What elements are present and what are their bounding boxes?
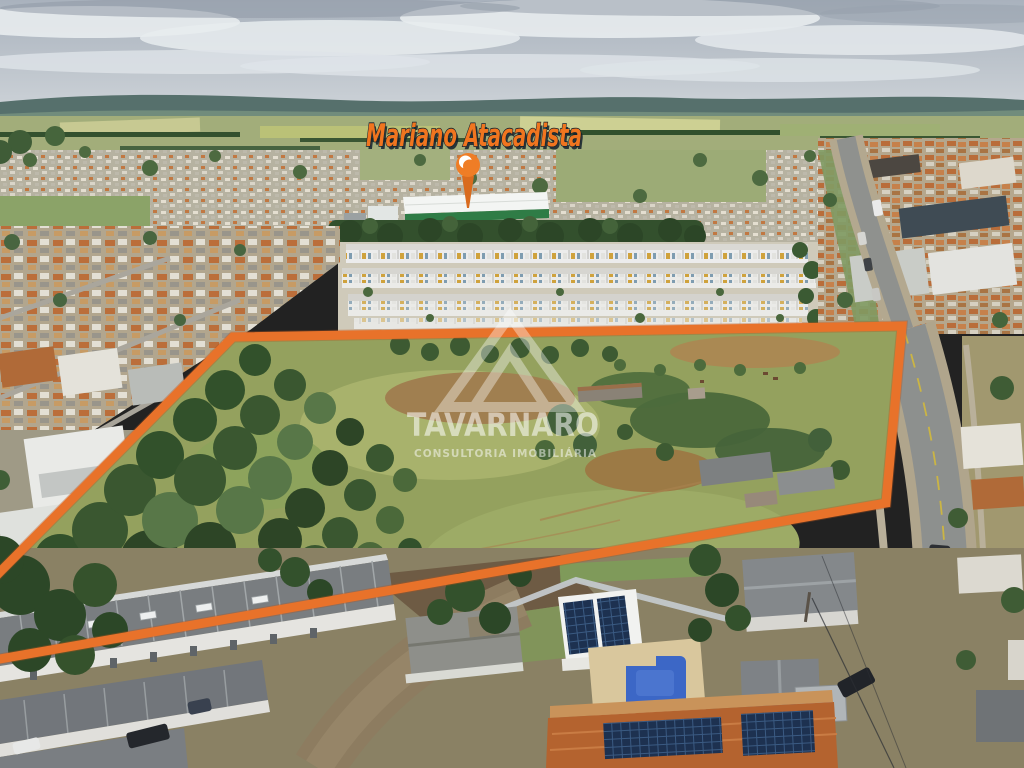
watermark-tagline: CONSULTORIA IMOBILIÁRIA bbox=[414, 447, 597, 460]
aerial-photo: Mariano Atacadista Mariano Atacadista TA… bbox=[0, 0, 1024, 768]
watermark-brand: TAVARNARO bbox=[407, 406, 599, 444]
townhouse-complex bbox=[338, 242, 825, 332]
aerial-scene: Mariano Atacadista Mariano Atacadista TA… bbox=[0, 0, 1024, 768]
poi-label: Mariano Atacadista bbox=[366, 118, 582, 154]
